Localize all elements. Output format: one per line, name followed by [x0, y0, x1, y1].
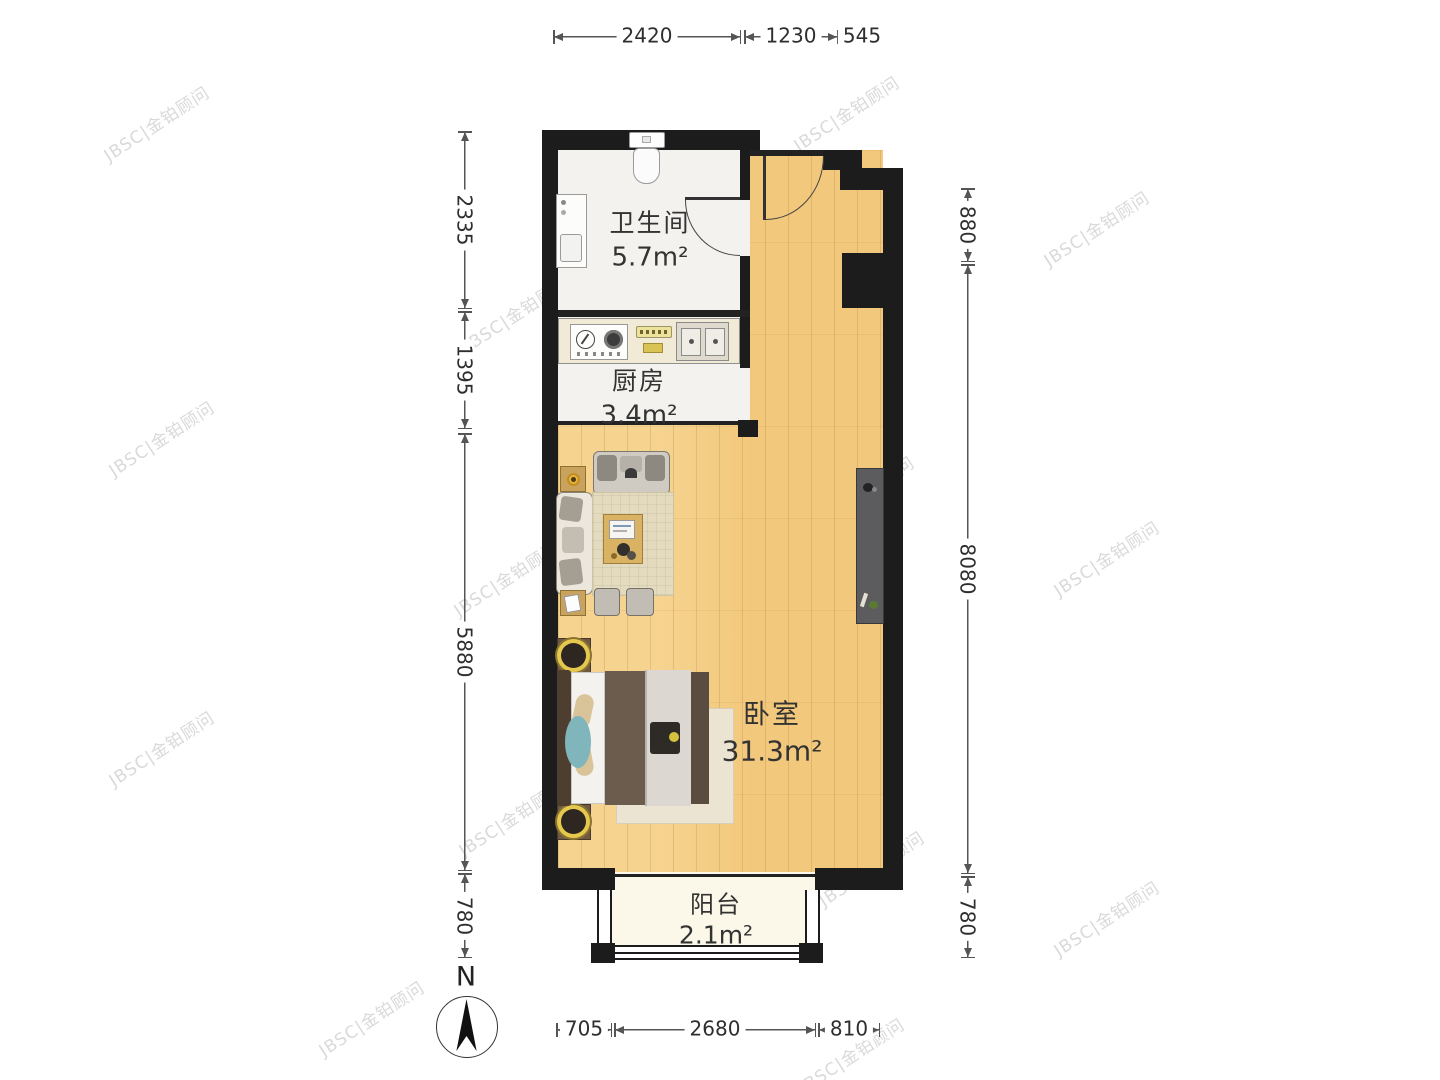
side-table-plant-icon [560, 466, 586, 492]
wall-kitchen-corner-pillar [738, 420, 758, 437]
dim-right-880: 880 [960, 188, 976, 262]
kitchen-counter [558, 318, 740, 364]
bed-tray-icon [650, 722, 680, 754]
loveseat-icon [593, 451, 670, 495]
watermark: JBSC|金铂顾问 [103, 704, 219, 791]
sink-icon [676, 322, 729, 361]
bathroom-door-opening [740, 200, 750, 256]
balcony-threshold [613, 874, 815, 877]
wall-bottom-right [815, 868, 903, 890]
coffee-table-icon [603, 514, 643, 564]
bed-footboard [691, 672, 709, 804]
floor-plan: JBSC|金铂顾问 JBSC|金铂顾问 JBSC|金铂顾问 JBSC|金铂顾问 … [0, 0, 1440, 1080]
tv-cabinet-icon [856, 468, 884, 624]
compass-north-label: N [456, 962, 476, 993]
dim-bottom-810: 810 [818, 1022, 880, 1038]
dim-bottom-705: 705 [556, 1022, 612, 1038]
stool-icon [626, 588, 654, 616]
bathroom-name: 卫生间 [609, 204, 690, 240]
stool-icon [594, 588, 620, 616]
dim-bottom-2680: 2680 [614, 1022, 816, 1038]
room-label-bathroom: 卫生间 5.7m² [609, 204, 690, 273]
side-table-book-icon [560, 590, 586, 616]
wall-kitchen-right [740, 317, 750, 368]
spice-box-icon [636, 326, 672, 338]
wall-bottom-left [542, 868, 615, 890]
watermark: JBSC|金铂顾问 [313, 974, 429, 1061]
balcony-area: 2.1m² [679, 921, 753, 950]
wall-bathroom-right-lower [740, 256, 750, 318]
room-label-bedroom: 卧室 31.3m² [722, 693, 823, 768]
wall-right-pillar [842, 253, 883, 308]
nightstand-lamp-icon [557, 638, 591, 674]
balcony-pillar-left [591, 943, 615, 963]
watermark: JBSC|金铂顾问 [98, 79, 214, 166]
dim-left-2335: 2335 [457, 131, 473, 309]
kitchen-name: 厨房 [600, 362, 677, 398]
dim-top-2420: 2420 [553, 29, 741, 45]
kitchen-area: 3.4m² [600, 401, 677, 431]
dim-left-1395: 1395 [457, 311, 473, 429]
dim-right-8080: 8080 [960, 264, 976, 874]
room-label-kitchen: 厨房 3.4m² [600, 362, 677, 431]
spice-tray-icon [643, 343, 663, 353]
bedroom-name: 卧室 [722, 693, 823, 732]
bed-blanket [605, 671, 645, 805]
bathroom-vanity-icon [556, 194, 587, 268]
dim-right-780: 780 [960, 876, 976, 958]
sofa-icon [556, 492, 593, 595]
watermark: JBSC|金铂顾问 [103, 394, 219, 481]
watermark: JBSC|金铂顾问 [788, 69, 904, 156]
balcony-window-right [805, 890, 820, 946]
dim-left-780: 780 [457, 873, 473, 958]
dim-left-5880: 5880 [457, 433, 473, 871]
toilet-icon [629, 132, 665, 186]
bed-runner-pillow [565, 716, 591, 768]
balcony-name: 阳台 [679, 885, 753, 920]
bathroom-area: 5.7m² [609, 243, 690, 273]
wall-bathroom-kitchen-divider [558, 310, 750, 317]
balcony-window-left [597, 890, 612, 946]
kitchen-door-opening [740, 368, 750, 421]
watermark: JBSC|金铂顾问 [1038, 184, 1154, 271]
wall-bathroom-right-upper [740, 130, 750, 200]
dim-top-1230: 1230 [744, 29, 838, 45]
dim-top-545: 545 [840, 29, 884, 45]
watermark: JBSC|金铂顾问 [1048, 874, 1164, 961]
stove-icon [570, 324, 628, 360]
bed-icon [557, 670, 709, 806]
watermark: JBSC|金铂顾问 [1048, 514, 1164, 601]
room-label-balcony: 阳台 2.1m² [679, 885, 753, 950]
wall-step-block-1 [823, 150, 862, 170]
balcony-pillar-right [799, 943, 823, 963]
nightstand-lamp-icon [557, 804, 591, 840]
bedroom-area: 31.3m² [722, 735, 823, 768]
wall-right [883, 185, 903, 890]
